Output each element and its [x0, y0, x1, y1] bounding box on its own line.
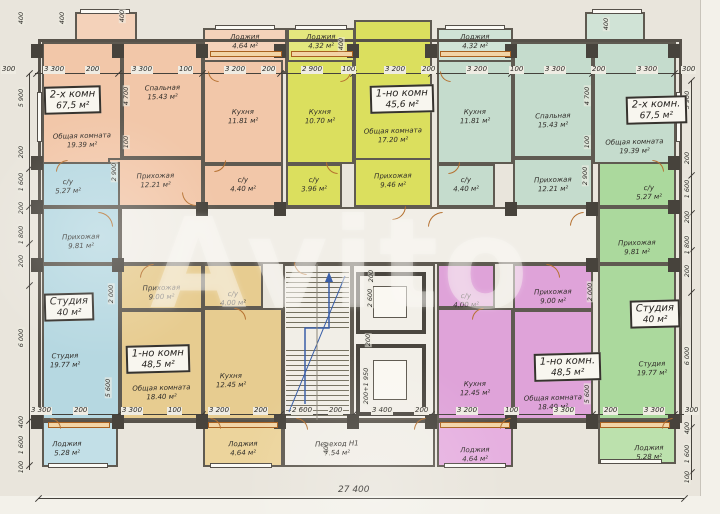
dimension-label: 2 000 [587, 282, 594, 303]
total-width-label: 27 400 [338, 486, 370, 495]
unit-label-2k-left: 2-х комн67,5 м² [44, 85, 102, 114]
room-bedroom-mint: Спальная15.43 м² [513, 42, 593, 158]
dimension-label: 3 300 [553, 407, 575, 415]
dimension-label: 1 600 [684, 179, 691, 200]
dimension-label: 2 900 [111, 162, 118, 183]
dimension-label: 400 [323, 441, 330, 455]
unit-label-1k-top: 1-но комн45,6 м² [370, 84, 435, 114]
dimension-label: 3 300 [121, 407, 143, 415]
dimension-label: 400 [18, 415, 25, 429]
wall-pillar [425, 415, 437, 429]
room-bay-peach [75, 12, 137, 44]
wall-pillar [112, 415, 124, 429]
dimension-line-right [691, 80, 692, 480]
dimension-label: 200 [18, 254, 25, 268]
room-hall-yellow: Прихожая9.46 м² [354, 158, 432, 207]
dimension-label: 100 [18, 460, 25, 474]
dimension-label: 2 000 [108, 284, 115, 305]
dimension-label: 3 200 [456, 407, 478, 415]
dimension-label: 2 600 [291, 407, 313, 415]
dimension-label: 1 600 [18, 435, 25, 456]
dimension-label: 200 [18, 145, 25, 159]
floor-plan-drawing: Общая комната19.39 м² Спальная15.43 м² Л… [0, 0, 720, 514]
dimension-label: 100 [178, 66, 193, 74]
dimension-label: 200 [73, 407, 88, 415]
dimension-label: 2 900 [301, 66, 323, 74]
window-sill [210, 51, 282, 57]
dimension-label: 100 [584, 135, 591, 149]
wall-pillar [668, 156, 680, 170]
window-sill [600, 422, 670, 428]
room-kitchen-tan: Кухня12.45 м² [203, 308, 283, 420]
unit-label-1k-tan: 1-но комн48,5 м² [126, 344, 191, 374]
dimension-label: 3 300 [643, 407, 665, 415]
elevator-cab-1 [373, 286, 407, 318]
dimension-label: 1 800 [684, 235, 691, 256]
wall-pillar [668, 200, 680, 214]
dimension-label: 3 200 [224, 66, 246, 74]
dimension-label: 5 900 [18, 88, 25, 109]
wall-pillar [112, 44, 124, 58]
wall-pillar [586, 258, 598, 272]
paper-edge-right [700, 0, 720, 514]
window [444, 463, 506, 468]
dimension-label: 2 600 [367, 288, 374, 309]
window-sill [440, 51, 511, 57]
dimension-label: 400 [18, 11, 25, 25]
dimension-label: 200 [684, 264, 691, 278]
dimension-label: 3 300 [131, 66, 153, 74]
dimension-label: 2 900 [582, 166, 589, 187]
dimension-label: 400 [338, 37, 345, 51]
dimension-label: 3 200 [466, 66, 488, 74]
window [37, 92, 42, 142]
unit-label-studio-right: Студия40 м² [630, 299, 681, 328]
window [215, 25, 275, 30]
unit-label-1k-pink: 1-но комн.48,5 м² [534, 352, 602, 382]
dimension-label: 4 700 [123, 86, 130, 107]
dimension-label: 6 000 [684, 346, 691, 367]
room-bedroom-peach: Спальная15.43 м² [122, 42, 203, 158]
room-bay-mint [585, 12, 645, 44]
dimension-label: 100 [504, 407, 519, 415]
wall-pillar [196, 202, 208, 216]
dimension-label: 3 300 [636, 66, 658, 74]
dimension-label: 200+1 950 [363, 367, 370, 405]
room-hall-tan: Прихожая9.00 м² [120, 264, 203, 310]
wall-pillar [668, 44, 680, 58]
dimension-label: 200 [368, 269, 375, 283]
wall-pillar [196, 415, 208, 429]
dimension-label: 200 [421, 66, 436, 74]
dimension-label: 3 400 [371, 407, 393, 415]
dimension-label: 100 [123, 135, 130, 149]
wall-pillar [31, 258, 43, 272]
dimension-label: 100 [167, 407, 182, 415]
window [295, 25, 347, 30]
floor-plan: Общая комната19.39 м² Спальная15.43 м² Л… [0, 0, 720, 514]
wall-pillar [31, 200, 43, 214]
room-bathroom-pink: с/у4.00 м² [437, 264, 495, 308]
dimension-label: 300 [1, 66, 16, 74]
room-bathroom-studio-left: с/у5.27 м² [42, 162, 120, 207]
dimension-label: 6 000 [18, 328, 25, 349]
dimension-label: 3 300 [544, 66, 566, 74]
window [48, 463, 108, 468]
dimension-label: 5 600 [584, 384, 591, 405]
wall-pillar [586, 415, 598, 429]
dimension-label: 200 [328, 407, 343, 415]
dimension-label: 200 [18, 201, 25, 215]
dimension-label: 200 [591, 66, 606, 74]
dimension-label: 200 [414, 407, 429, 415]
stair-arrow [283, 264, 352, 420]
dimension-label: 400 [603, 17, 610, 31]
dimension-label: 400 [684, 421, 691, 435]
dimension-label: 1 800 [18, 225, 25, 246]
dimension-label: 1 600 [18, 172, 25, 193]
wall-pillar [668, 258, 680, 272]
room-hall-studio-right: Прихожая9.81 м² [598, 207, 676, 264]
wall-pillar [196, 44, 208, 58]
dimension-label: 3 300 [30, 407, 52, 415]
room-bathroom-mint: с/у4.40 м² [437, 164, 495, 207]
window-sill [291, 51, 353, 57]
dimension-label: 200 [261, 66, 276, 74]
room-studio-right: Студия19.77 м² [598, 264, 676, 420]
dimension-label: 200 [684, 210, 691, 224]
window [600, 459, 662, 464]
wall-pillar [112, 258, 124, 272]
unit-label-studio-left: Студия40 м² [44, 292, 95, 321]
dimension-label: 100 [341, 66, 356, 74]
dimension-label: 300 [684, 407, 699, 415]
dimension-label: 200 [603, 407, 618, 415]
dimension-label: 400 [119, 9, 126, 23]
dimension-label: 100 [509, 66, 524, 74]
window [592, 9, 642, 14]
wall-pillar [586, 202, 598, 216]
corridor [120, 207, 598, 264]
wall-pillar [31, 415, 43, 429]
dimension-label: 3 200 [384, 66, 406, 74]
dimension-label: 200 [365, 333, 372, 347]
wall-pillar [31, 156, 43, 170]
room-bathroom-studio-right: с/у5.27 м² [598, 162, 676, 207]
room-bathroom-tan: с/у4.00 м² [203, 264, 263, 308]
window [210, 463, 272, 468]
wall-pillar [505, 202, 517, 216]
wall-pillar [586, 44, 598, 58]
dimension-label: 3 300 [43, 66, 65, 74]
wall-pillar [274, 202, 286, 216]
room-kitchen-pink: Кухня12.45 м² [437, 308, 513, 420]
dimension-label: 1 600 [684, 444, 691, 465]
dimension-label: 4 700 [584, 86, 591, 107]
dimension-label: 300 [681, 66, 696, 74]
unit-label-2k-right: 2-х комн.67,5 м² [626, 95, 687, 124]
dimension-label: 100 [684, 470, 691, 484]
dimension-label: 200 [85, 66, 100, 74]
elevator-cab-2 [373, 360, 407, 400]
dimension-label: 5 600 [105, 378, 112, 399]
window [445, 25, 505, 30]
dimension-line-total [38, 498, 684, 499]
dimension-label: 3 200 [208, 407, 230, 415]
dimension-label: 400 [59, 11, 66, 25]
wall-pillar [31, 44, 43, 58]
dimension-label: 200 [253, 407, 268, 415]
dimension-label: 200 [684, 151, 691, 165]
wall-pillar [425, 44, 437, 58]
